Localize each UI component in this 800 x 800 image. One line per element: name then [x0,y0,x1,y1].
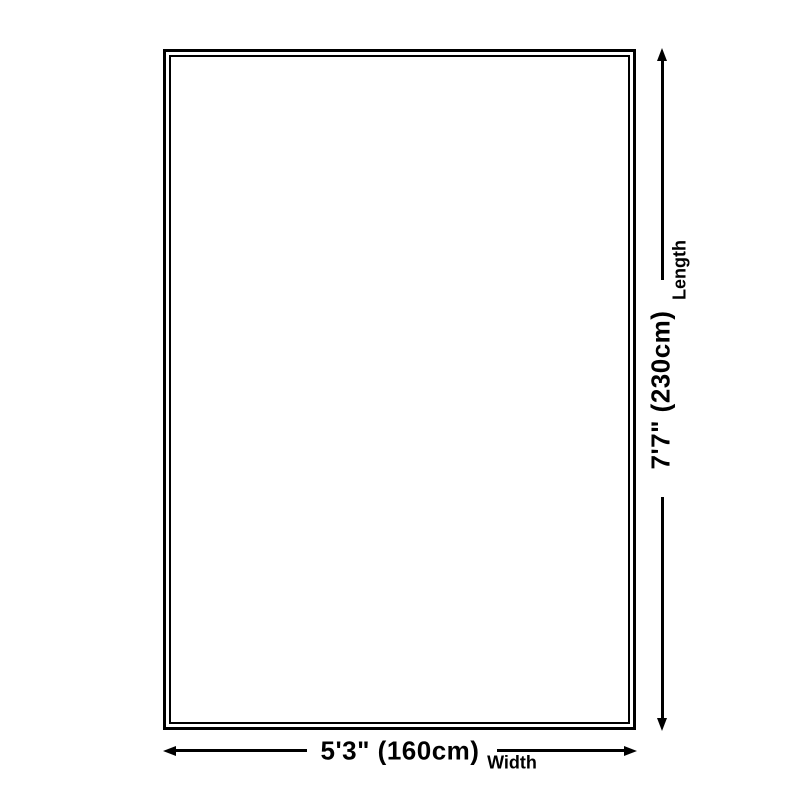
length-dimension-line-upper [661,59,664,280]
dimension-diagram: Length 7'7" (230cm) 5'3" (160cm) Width [0,0,800,800]
width-dimension-line-left [175,749,307,752]
arrow-down-icon [657,718,667,731]
width-axis-label: Width [487,753,537,774]
arrow-right-icon [624,746,637,756]
length-value-label: 7'7" (230cm) [646,311,677,470]
length-axis-label: Length [670,240,691,300]
width-value-label: 5'3" (160cm) [321,736,480,767]
product-outline-rect [163,49,636,730]
product-outline-inner-border [169,55,630,724]
length-dimension-line-lower [661,497,664,718]
